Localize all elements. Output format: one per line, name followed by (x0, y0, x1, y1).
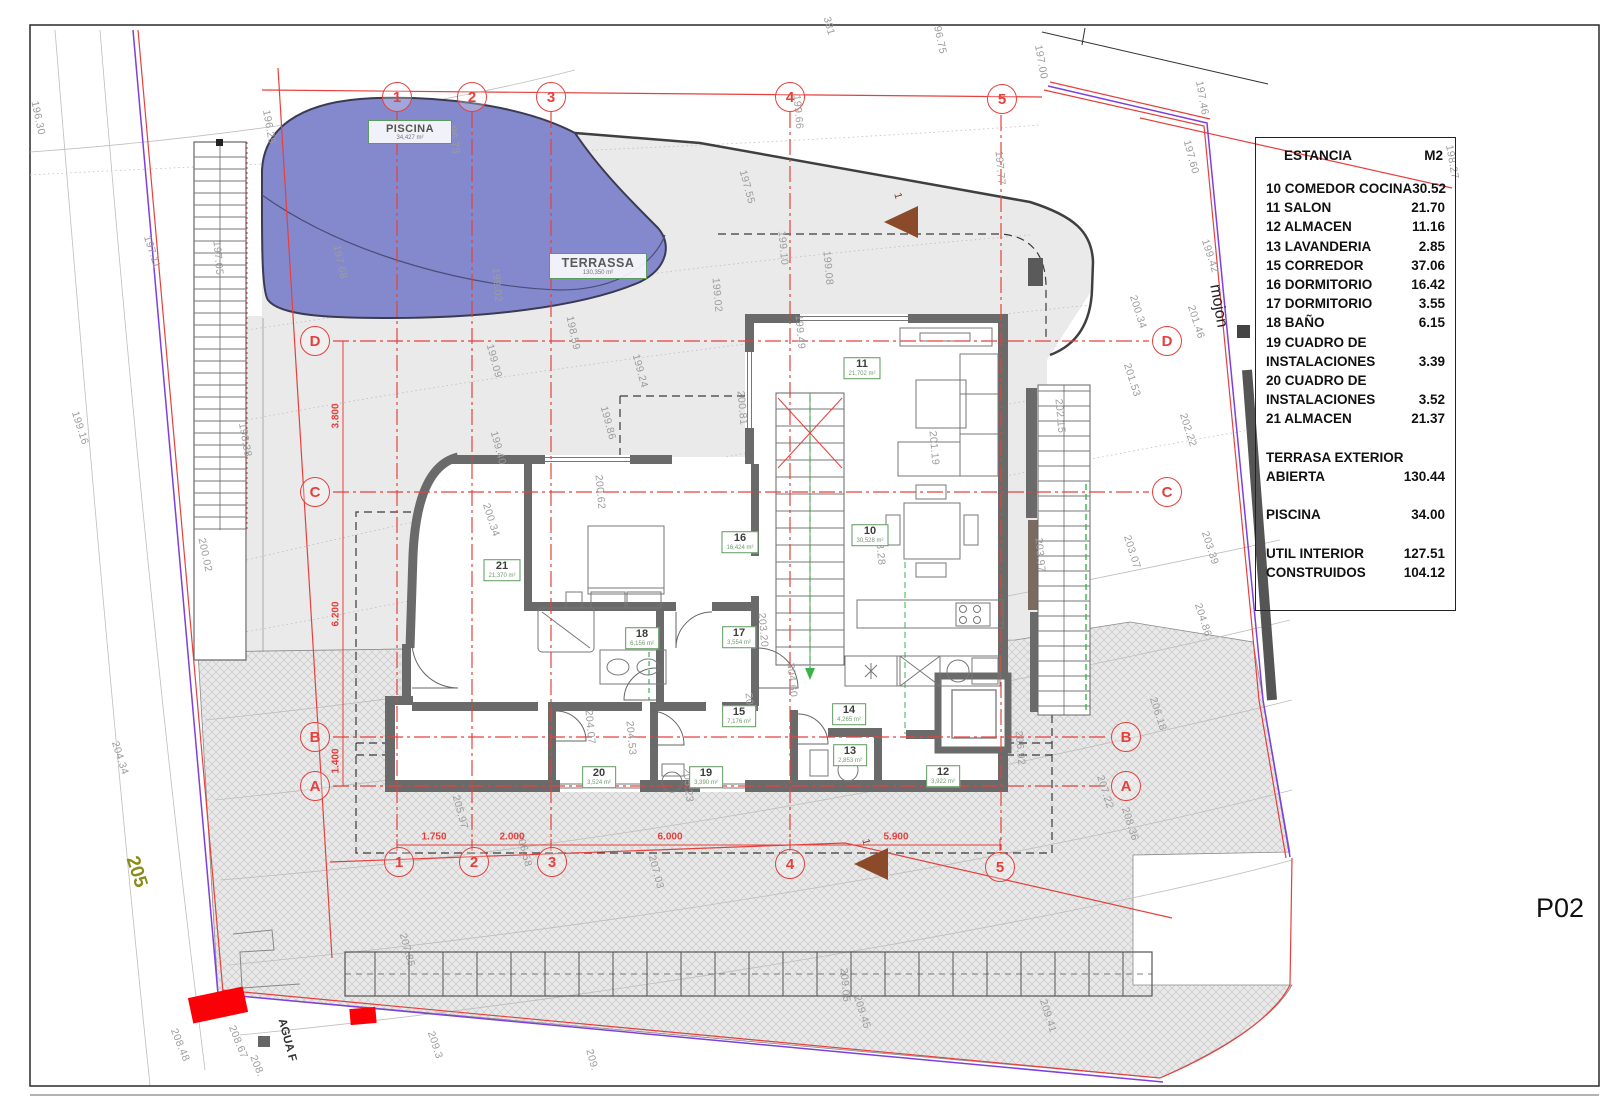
legend-row-label: PISCINA (1266, 505, 1321, 524)
site-plan-sheet: 1234512345DCBADCBA 196.30197.11199.16204… (0, 0, 1624, 1115)
room-area: 7,176 m² (727, 719, 751, 725)
legend-row: INSTALACIONES 3.39 (1266, 352, 1445, 371)
legend-row-value: 104.12 (1404, 563, 1445, 582)
room-area: 3,390 m² (694, 780, 718, 786)
dimension-label: 3.800 (331, 403, 342, 428)
room-area: 21,370 m² (488, 573, 515, 579)
legend-row: 19 CUADRO DE (1266, 333, 1445, 352)
legend-row-label: CONSTRUIDOS (1266, 563, 1366, 582)
legend-row: INSTALACIONES 3.52 (1266, 390, 1445, 409)
legend-row-label: INSTALACIONES (1266, 390, 1375, 409)
room-chip: 17 3,554 m² (722, 626, 756, 648)
legend-row-label: 17 DORMITORIO (1266, 294, 1372, 313)
room-chip: 20 3,524 m² (582, 766, 616, 788)
grid-bubble: 5 (987, 84, 1017, 114)
legend-row: UTIL INTERIOR 127.51 (1266, 544, 1445, 563)
legend-row: 12 ALMACEN 11.16 (1266, 217, 1445, 236)
room-area: 3,524 m² (587, 780, 611, 786)
grid-bubble: 1 (382, 82, 412, 112)
room-chip: 13 2,853 m² (833, 744, 867, 766)
room-number: 13 (838, 746, 862, 758)
legend-row-value: 30.52 (1412, 179, 1446, 198)
room-number: 21 (488, 561, 515, 573)
room-area: 4,265 m² (837, 717, 861, 723)
legend-row: PISCINA 34.00 (1266, 505, 1445, 524)
room-area: 2,853 m² (838, 758, 862, 764)
room-number: 17 (727, 628, 751, 640)
grid-bubble: A (300, 771, 330, 801)
grid-bubble: 2 (459, 847, 489, 877)
legend-rows: 10 COMEDOR COCINA 30.52 11 SALON 21.70 1… (1266, 179, 1445, 582)
sheet-code: P02 (1518, 893, 1602, 924)
terrassa-area: 130,350 m² (554, 270, 642, 276)
room-chip: 18 6,156 m² (625, 627, 659, 649)
legend-row-label: 11 SALON (1266, 198, 1331, 217)
room-number: 19 (694, 768, 718, 780)
legend-row-value: 3.39 (1419, 352, 1445, 371)
legend-row-value: 11.16 (1412, 217, 1445, 236)
room-chip: 11 21,702 m² (843, 357, 880, 379)
legend-row: 20 CUADRO DE (1266, 371, 1445, 390)
grid-bubble: 1 (384, 847, 414, 877)
room-number: 11 (848, 359, 875, 371)
room-area: 21,702 m² (848, 371, 875, 377)
legend-row (1266, 429, 1445, 448)
room-chip: 19 3,390 m² (689, 766, 723, 788)
terrassa-label: TERRASSA 130,350 m² (549, 253, 647, 279)
room-chip: 21 21,370 m² (483, 559, 520, 581)
room-area: 6,156 m² (630, 641, 654, 647)
grid-bubble: 2 (457, 82, 487, 112)
room-number: 15 (727, 707, 751, 719)
legend-row (1266, 486, 1445, 505)
legend-row: 21 ALMACEN 21.37 (1266, 409, 1445, 428)
legend-row-value: 127.51 (1404, 544, 1445, 563)
legend-row-value: 34.00 (1411, 505, 1445, 524)
legend-row-label: ABIERTA (1266, 467, 1325, 486)
legend-row-label: UTIL INTERIOR (1266, 544, 1364, 563)
legend-row: 11 SALON 21.70 (1266, 198, 1445, 217)
dimension-label: 1.400 (331, 748, 342, 773)
legend-row-label: 19 CUADRO DE (1266, 333, 1367, 352)
legend-row-value: 21.70 (1411, 198, 1445, 217)
legend-table: ESTANCIA M2 10 COMEDOR COCINA 30.52 11 S… (1255, 137, 1456, 611)
legend-row-label: 16 DORMITORIO (1266, 275, 1372, 294)
terrassa-name: TERRASSA (554, 256, 642, 270)
legend-unit: M2 (1424, 148, 1443, 163)
legend-row-value: 6.15 (1419, 313, 1445, 332)
legend-row-label: 10 COMEDOR COCINA (1266, 179, 1412, 198)
legend-row-label: INSTALACIONES (1266, 352, 1375, 371)
legend-row-label: 12 ALMACEN (1266, 217, 1352, 236)
room-number: 18 (630, 629, 654, 641)
legend-row-value: 130.44 (1404, 467, 1445, 486)
legend-row: 15 CORREDOR 37.06 (1266, 256, 1445, 275)
dimension-label: 5.900 (883, 832, 908, 843)
legend-row-value: 2.85 (1419, 237, 1445, 256)
grid-bubble: 5 (985, 852, 1015, 882)
legend-row: 17 DORMITORIO 3.55 (1266, 294, 1445, 313)
legend-row-value: 3.52 (1419, 390, 1445, 409)
grid-bubble: 4 (775, 849, 805, 879)
grid-bubble: C (1152, 477, 1182, 507)
room-chip: 10 30,528 m² (851, 524, 888, 546)
room-area: 30,528 m² (856, 538, 883, 544)
piscina-label: PISCINA 34,427 m² (368, 120, 452, 144)
legend-row-label: 15 CORREDOR (1266, 256, 1364, 275)
grid-bubble: B (1111, 722, 1141, 752)
room-number: 20 (587, 768, 611, 780)
dimension-label: 1.750 (421, 832, 446, 843)
room-area: 16,424 m² (726, 545, 753, 551)
legend-row-label: 18 BAÑO (1266, 313, 1325, 332)
room-area: 3,554 m² (727, 640, 751, 646)
legend-row (1266, 525, 1445, 544)
grid-bubble: A (1111, 771, 1141, 801)
room-number: 16 (726, 533, 753, 545)
room-number: 10 (856, 526, 883, 538)
room-area: 3,922 m² (931, 779, 955, 785)
dimension-label: 6.200 (331, 601, 342, 626)
legend-row: TERRASA EXTERIOR (1266, 448, 1445, 467)
grid-bubble: 3 (536, 82, 566, 112)
grid-bubble: B (300, 722, 330, 752)
dimension-label: 6.000 (657, 832, 682, 843)
legend-row: ABIERTA 130.44 (1266, 467, 1445, 486)
legend-row-label: TERRASA EXTERIOR (1266, 448, 1404, 467)
legend-row: 13 LAVANDERIA 2.85 (1266, 237, 1445, 256)
piscina-area: 34,427 m² (373, 135, 447, 141)
grid-bubble: D (1152, 326, 1182, 356)
legend-row-value: 21.37 (1411, 409, 1445, 428)
grid-bubble: C (300, 477, 330, 507)
legend-row-value: 3.55 (1419, 294, 1445, 313)
grid-bubble: 3 (537, 847, 567, 877)
room-chip: 16 16,424 m² (721, 531, 758, 553)
room-chip: 12 3,922 m² (926, 765, 960, 787)
room-number: 14 (837, 705, 861, 717)
room-chip: 15 7,176 m² (722, 705, 756, 727)
legend-row-label: 13 LAVANDERIA (1266, 237, 1371, 256)
legend-row-label: 21 ALMACEN (1266, 409, 1352, 428)
legend-row: CONSTRUIDOS 104.12 (1266, 563, 1445, 582)
legend-row: 10 COMEDOR COCINA 30.52 (1266, 179, 1445, 198)
legend-title: ESTANCIA (1284, 148, 1352, 163)
room-chip: 14 4,265 m² (832, 703, 866, 725)
grid-bubble: D (300, 326, 330, 356)
legend-row-value: 16.42 (1411, 275, 1445, 294)
legend-row: 18 BAÑO 6.15 (1266, 313, 1445, 332)
dimension-label: 2.000 (499, 832, 524, 843)
legend-row: 16 DORMITORIO 16.42 (1266, 275, 1445, 294)
legend-row-label: 20 CUADRO DE (1266, 371, 1367, 390)
piscina-name: PISCINA (373, 123, 447, 135)
legend-row-value: 37.06 (1411, 256, 1445, 275)
room-number: 12 (931, 767, 955, 779)
